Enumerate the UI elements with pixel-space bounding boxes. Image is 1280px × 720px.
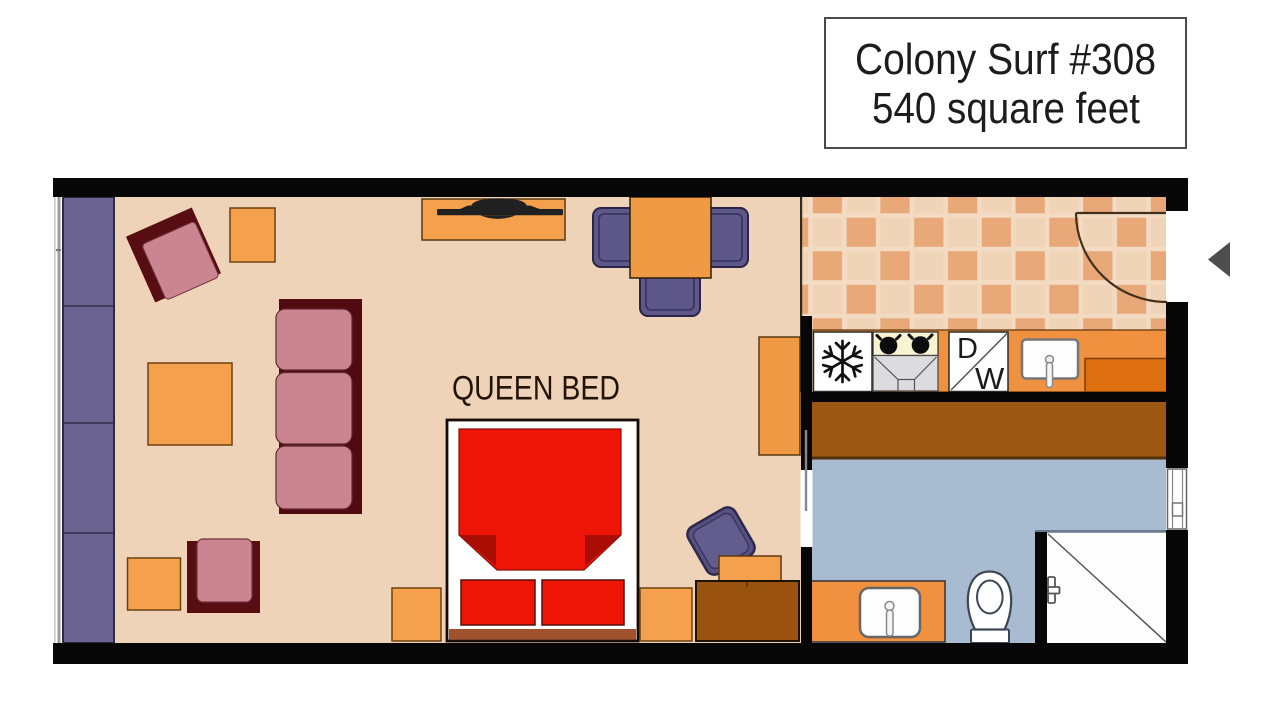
svg-text:Colony Surf #308: Colony Surf #308	[855, 35, 1156, 84]
svg-text:540 square feet: 540 square feet	[872, 84, 1140, 133]
svg-text:QUEEN BED: QUEEN BED	[452, 370, 620, 408]
svg-text:W: W	[975, 361, 1005, 396]
